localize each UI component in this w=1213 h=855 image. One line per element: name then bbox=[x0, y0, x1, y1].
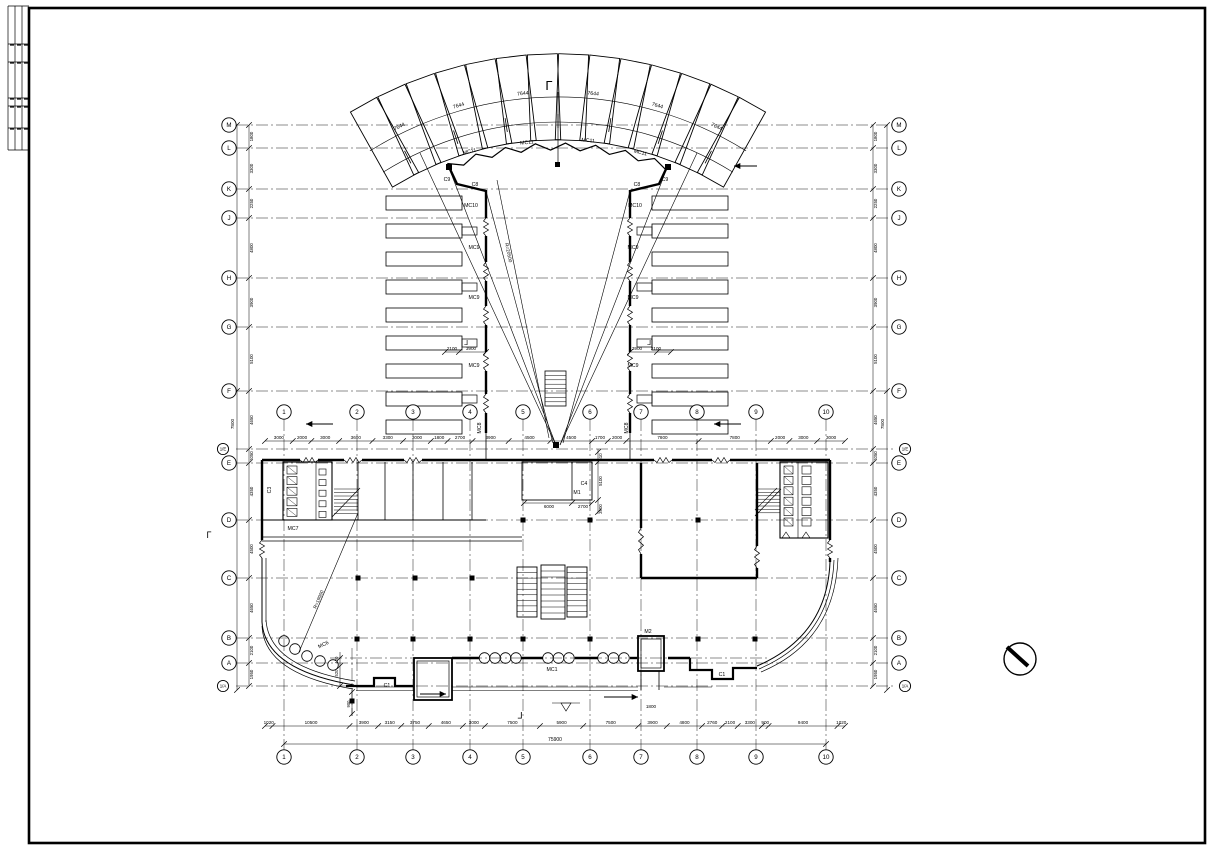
annotation-label: 2100 bbox=[447, 346, 458, 351]
grid-bubble-label: 1 bbox=[282, 754, 286, 761]
annotation-label: MC9 bbox=[469, 363, 480, 369]
sight-line bbox=[299, 513, 358, 652]
seat-row bbox=[386, 392, 462, 406]
dimension-text: 2250 bbox=[873, 198, 878, 208]
annotation-label: 2100 bbox=[651, 346, 662, 351]
dimension-text: 3000 bbox=[798, 435, 809, 440]
grid-bubble-M: M bbox=[892, 118, 906, 132]
seat-row bbox=[652, 336, 728, 350]
vestibule-m2 bbox=[638, 636, 664, 671]
seat-row bbox=[386, 420, 462, 434]
grid-bubble-B: B bbox=[892, 631, 906, 645]
text-annotations: Γ764476447644764476447644MC11MC11MC11MC1… bbox=[207, 78, 885, 743]
annotation-label: 900 bbox=[346, 700, 351, 708]
seat-row-tab bbox=[462, 283, 477, 291]
dimension-text: 5100 bbox=[873, 354, 878, 364]
column-dot bbox=[413, 576, 418, 581]
door-scallop bbox=[302, 651, 313, 662]
seat-row bbox=[652, 308, 728, 322]
stair-flight bbox=[517, 567, 537, 617]
seat-row bbox=[386, 196, 462, 210]
grid-bubble-label: 5 bbox=[521, 754, 525, 761]
line bbox=[287, 508, 297, 516]
grid-bubble-label: M bbox=[226, 122, 231, 129]
dimension-text: 2760 bbox=[707, 720, 718, 725]
rect bbox=[553, 442, 559, 448]
seat-row bbox=[652, 224, 728, 238]
grid-bubble-8: 8 bbox=[690, 405, 704, 419]
window-zigzag bbox=[628, 394, 633, 413]
grid-bubble-10: 10 bbox=[819, 405, 833, 419]
annotation-label: MC11 bbox=[581, 137, 595, 144]
corner-wall bbox=[449, 167, 486, 191]
grid-bubble-label: 1/A bbox=[220, 684, 227, 689]
grid-bubble-C: C bbox=[222, 571, 236, 585]
window-zigzag bbox=[484, 218, 489, 236]
rect bbox=[641, 639, 661, 668]
dimension-annotations: 3000200030003600330030001800270039004500… bbox=[234, 122, 890, 747]
grid-bubble-label: C bbox=[227, 575, 232, 582]
grid-bubble-D: D bbox=[222, 513, 236, 527]
annotation-label: Γ bbox=[647, 338, 651, 345]
sight-line bbox=[420, 153, 556, 445]
grid-bubble-label: J bbox=[227, 215, 230, 222]
arrow-head bbox=[306, 421, 312, 427]
dimension-text: 2700 bbox=[455, 435, 466, 440]
annotation-label: Γ bbox=[464, 338, 468, 345]
dimension-text: 1020 bbox=[264, 720, 275, 725]
grid-bubble-label: E bbox=[227, 460, 231, 467]
line bbox=[784, 497, 793, 505]
column-dot bbox=[521, 637, 526, 642]
path bbox=[262, 626, 353, 689]
dimension-text: 1050 bbox=[249, 451, 254, 461]
arrow-head bbox=[714, 421, 720, 427]
dimension-text: 3000 bbox=[274, 435, 285, 440]
grid-bubble-label: H bbox=[897, 275, 901, 282]
window-zigzag bbox=[628, 218, 633, 236]
floor-plan-drawing: 3000200030003600330030001800270039004500… bbox=[0, 0, 1213, 855]
grid-bubble-E: E bbox=[222, 456, 236, 470]
annotation-label: 2700 bbox=[578, 504, 589, 509]
dimension-text: 7500 bbox=[606, 720, 617, 725]
dimension-text: 4650 bbox=[441, 720, 452, 725]
grid-bubble-label: 4 bbox=[468, 409, 472, 416]
grid-bubble-9: 9 bbox=[749, 750, 763, 764]
grid-bubble-label: 1 bbox=[282, 409, 286, 416]
dimension-text: 3300 bbox=[745, 720, 756, 725]
annotation-label: MC1 bbox=[547, 667, 558, 673]
grid-bubble-F: F bbox=[222, 384, 236, 398]
grid-bubble-label: F bbox=[897, 388, 901, 395]
rect bbox=[555, 162, 560, 167]
dimension-text: 3300 bbox=[249, 163, 254, 173]
seat-row bbox=[386, 224, 462, 238]
annotation-label: MC8 bbox=[624, 422, 630, 433]
window-zigzag bbox=[260, 540, 265, 558]
grid-bubble-label: H bbox=[227, 275, 231, 282]
north-arrow-icon bbox=[1004, 643, 1036, 675]
seat-row bbox=[386, 280, 462, 294]
dimension-text: 4500 bbox=[873, 544, 878, 554]
grid-bubble-2: 2 bbox=[350, 405, 364, 419]
column-dot bbox=[588, 637, 593, 642]
window-zigzag bbox=[755, 546, 760, 568]
grid-bubble-label: 3 bbox=[411, 409, 415, 416]
dimension-text: 7800 bbox=[730, 435, 741, 440]
annotation-label: M2 bbox=[644, 629, 651, 635]
grid-bubble-C: C bbox=[892, 571, 906, 585]
toilet-stall bbox=[802, 487, 811, 495]
grid-bubble-J: J bbox=[222, 211, 236, 225]
grid-bubble-10: 10 bbox=[819, 750, 833, 764]
grid-bubble-4: 4 bbox=[463, 405, 477, 419]
grid-bubble-label: F bbox=[227, 388, 231, 395]
grid-bubble-label: 9 bbox=[754, 754, 758, 761]
annotation-label: C4 bbox=[581, 481, 588, 487]
column-dot bbox=[753, 637, 758, 642]
dimension-text: 3000 bbox=[320, 435, 331, 440]
column-dot bbox=[470, 576, 475, 581]
seat-row-tab bbox=[462, 395, 477, 403]
grid-bubble-G: G bbox=[222, 320, 236, 334]
seat-row bbox=[386, 308, 462, 322]
drawing-sheet: 3000200030003600330030001800270039004500… bbox=[0, 0, 1213, 855]
window-zigzag bbox=[654, 458, 672, 463]
grid-bubble-label: 4 bbox=[468, 754, 472, 761]
annotation-label: 7644 bbox=[452, 102, 465, 111]
path bbox=[759, 560, 834, 669]
seat-row bbox=[652, 392, 728, 406]
level-mark bbox=[561, 703, 571, 711]
annotation-label: 7644 bbox=[517, 90, 529, 97]
arrow-head bbox=[734, 163, 740, 169]
dimension-text: 4650 bbox=[249, 415, 254, 425]
dimension-text: 1020 bbox=[836, 720, 847, 725]
annotation-label: Γ bbox=[517, 710, 522, 720]
grid-bubble-1: 1 bbox=[277, 405, 291, 419]
grid-bubble-9: 9 bbox=[749, 405, 763, 419]
grid-bubble-6: 6 bbox=[583, 750, 597, 764]
toilet-stall bbox=[802, 476, 811, 484]
dimension-text: 3000 bbox=[826, 435, 837, 440]
path bbox=[266, 620, 355, 681]
column-dot bbox=[355, 637, 360, 642]
line bbox=[287, 498, 297, 506]
path bbox=[761, 558, 838, 672]
annotation-label: MC6 bbox=[317, 640, 330, 650]
line bbox=[287, 466, 297, 474]
annotation-label: C9 bbox=[444, 177, 451, 183]
grid-bubble-label: 1/E bbox=[220, 447, 227, 452]
grid-bubble-label: L bbox=[897, 145, 901, 152]
grid-bubble-1: 1 bbox=[277, 750, 291, 764]
annotation-label: MC9 bbox=[628, 295, 639, 301]
grid-bubble-label: 6 bbox=[588, 754, 592, 761]
annotation-label: 120 bbox=[334, 656, 339, 664]
grid-bubble-A: A bbox=[222, 656, 236, 670]
grid-bubble-K: K bbox=[222, 182, 236, 196]
door-scallop bbox=[290, 644, 301, 655]
dimension-text: 2000 bbox=[775, 435, 786, 440]
annotation-label: MC9 bbox=[469, 295, 480, 301]
dimension-text: 3000 bbox=[412, 435, 423, 440]
dimension-text: 900 bbox=[761, 720, 769, 725]
annotation-label: MC9 bbox=[628, 363, 639, 369]
arrow-head bbox=[632, 694, 638, 700]
annotation-label: 510 bbox=[598, 453, 603, 461]
grid-bubble-3: 3 bbox=[406, 750, 420, 764]
annotation-label: MC10 bbox=[628, 203, 642, 209]
annotation-label: 7644 bbox=[393, 122, 406, 133]
annotation-label: C8 bbox=[472, 182, 479, 188]
grid-bubble-label: G bbox=[227, 324, 232, 331]
grid-bubble-6: 6 bbox=[583, 405, 597, 419]
annotation-label: Γ bbox=[207, 530, 212, 540]
grid-bubble-8: 8 bbox=[690, 750, 704, 764]
annotation-label: 1800 bbox=[646, 704, 657, 709]
annotation-label: MC9 bbox=[628, 245, 639, 251]
grid-bubble-7: 7 bbox=[634, 750, 648, 764]
annotation-label: 7644 bbox=[651, 102, 664, 111]
annotation-label: 7800 bbox=[880, 418, 885, 429]
annotation-label: M1 bbox=[573, 490, 580, 496]
grid-bubble-label: 9 bbox=[754, 409, 758, 416]
grid-bubble-5: 5 bbox=[516, 405, 530, 419]
grid-bubble-4: 4 bbox=[463, 750, 477, 764]
grid-bubble-label: 10 bbox=[823, 754, 830, 761]
column-dot bbox=[411, 637, 416, 642]
dimension-text: 1700 bbox=[595, 435, 606, 440]
window-zigzag bbox=[484, 394, 489, 413]
annotation-label: MC7 bbox=[288, 526, 299, 532]
toilet-stall bbox=[802, 518, 811, 526]
title-block bbox=[8, 6, 29, 150]
annotation-label: MC11 bbox=[633, 148, 648, 157]
toilet-stall bbox=[802, 466, 811, 474]
dimension-text: 4350 bbox=[873, 486, 878, 496]
grid-bubble-label: 7 bbox=[639, 754, 643, 761]
grid-bubble-label: G bbox=[897, 324, 902, 331]
seat-row-tab bbox=[637, 227, 652, 235]
seat-row bbox=[652, 280, 728, 294]
dimension-text: 3900 bbox=[647, 720, 658, 725]
dimension-text: 2000 bbox=[612, 435, 623, 440]
dimension-text: 3900 bbox=[249, 297, 254, 307]
annotation-label: 3900 bbox=[466, 346, 477, 351]
dimension-text: 2100 bbox=[249, 645, 254, 655]
dimension-text: 3750 bbox=[410, 720, 421, 725]
dimension-text: 3900 bbox=[359, 720, 370, 725]
line bbox=[784, 508, 793, 516]
grid-bubble-label: 8 bbox=[695, 754, 699, 761]
grid-bubble-label: 2 bbox=[355, 409, 359, 416]
annotation-label: MC11 bbox=[520, 139, 534, 146]
grid-bubble-label: 7 bbox=[639, 409, 643, 416]
grid-bubble-label: E bbox=[897, 460, 901, 467]
dimension-text: 4500 bbox=[249, 544, 254, 554]
dimension-text: 4650 bbox=[873, 603, 878, 613]
annotation-label: 6000 bbox=[544, 504, 555, 509]
grid-bubble-1/E: 1/E bbox=[899, 443, 910, 454]
window-zigzag bbox=[828, 540, 833, 558]
annotation-label: 7800 bbox=[230, 418, 235, 429]
line bbox=[784, 476, 793, 484]
toilet-stall bbox=[802, 497, 811, 505]
fixture bbox=[319, 469, 326, 475]
window-zigzag bbox=[712, 458, 730, 463]
line bbox=[287, 477, 297, 485]
column-dot bbox=[521, 518, 526, 523]
annotation-label: 75900 bbox=[548, 737, 562, 743]
seat-row-tab bbox=[637, 395, 652, 403]
annotation-label: R=19900 bbox=[312, 589, 325, 610]
dimension-text: 5100 bbox=[249, 354, 254, 364]
annotation-label: 7644 bbox=[587, 90, 599, 97]
rect bbox=[417, 661, 449, 697]
annotation-label: 3900 bbox=[632, 346, 643, 351]
dimension-text: 3600 bbox=[351, 435, 362, 440]
annotation-label: MC8 bbox=[477, 422, 483, 433]
dimension-text: 4350 bbox=[249, 486, 254, 496]
grid-bubble-F: F bbox=[892, 384, 906, 398]
grid-bubble-1/E: 1/E bbox=[217, 443, 228, 454]
bottom-wall bbox=[346, 678, 413, 686]
grid-bubble-7: 7 bbox=[634, 405, 648, 419]
grid-bubble-G: G bbox=[892, 320, 906, 334]
seat-row bbox=[652, 364, 728, 378]
grid-bubble-label: D bbox=[897, 517, 902, 524]
seat-row bbox=[652, 252, 728, 266]
grid-bubble-H: H bbox=[222, 271, 236, 285]
dimension-text: 1050 bbox=[873, 451, 878, 461]
dimension-text: 1800 bbox=[873, 131, 878, 141]
dimension-text: 3000 bbox=[469, 720, 480, 725]
toilet-stall bbox=[802, 508, 811, 516]
dimension-text: 10500 bbox=[305, 720, 318, 725]
dimension-text: 4650 bbox=[873, 415, 878, 425]
grid-bubble-label: 2 bbox=[355, 754, 359, 761]
stair-flight bbox=[567, 567, 587, 617]
grid-bubble-A: A bbox=[892, 656, 906, 670]
sheet-frame bbox=[29, 8, 1205, 843]
border-frame bbox=[29, 8, 1205, 843]
dimension-text: 4500 bbox=[524, 435, 535, 440]
seat-row bbox=[652, 420, 728, 434]
column-dot bbox=[588, 518, 593, 523]
annotation-label: 3900 bbox=[598, 504, 603, 514]
grid-bubble-label: 8 bbox=[695, 409, 699, 416]
grid-bubble-label: 1/E bbox=[902, 447, 909, 452]
grid-bubble-label: B bbox=[227, 635, 231, 642]
dimension-text: 1950 bbox=[249, 669, 254, 679]
annotation-label: Γ bbox=[545, 78, 552, 93]
grid-bubble-K: K bbox=[892, 182, 906, 196]
sight-line bbox=[560, 168, 667, 445]
sight-line bbox=[449, 168, 556, 445]
grid-bubble-label: 3 bbox=[411, 754, 415, 761]
dimension-text: 4500 bbox=[566, 435, 577, 440]
dimension-text: 2100 bbox=[725, 720, 736, 725]
fixture bbox=[319, 511, 326, 517]
arrow-head bbox=[440, 691, 446, 697]
line bbox=[287, 487, 297, 495]
grid-bubble-label: L bbox=[227, 145, 231, 152]
grid-bubble-M: M bbox=[222, 118, 236, 132]
grid-bubble-L: L bbox=[892, 141, 906, 155]
grid-bubble-label: 1/A bbox=[902, 684, 909, 689]
annotation-label: MC9 bbox=[469, 245, 480, 251]
grid-bubble-E: E bbox=[892, 456, 906, 470]
dimension-text: 4800 bbox=[679, 720, 690, 725]
grid-bubble-label: C bbox=[897, 575, 902, 582]
window-zigzag bbox=[484, 352, 489, 371]
grid-bubble-D: D bbox=[892, 513, 906, 527]
line bbox=[784, 487, 793, 495]
annotation-label: 5100 bbox=[598, 476, 603, 486]
grid-bubble-label: 10 bbox=[823, 409, 830, 416]
seat-row-tab bbox=[462, 227, 477, 235]
window-zigzag bbox=[628, 306, 633, 325]
grid-bubble-label: B bbox=[897, 635, 901, 642]
dimension-text: 5900 bbox=[556, 720, 567, 725]
dimension-text: 2250 bbox=[249, 198, 254, 208]
seat-row bbox=[386, 252, 462, 266]
door-swing bbox=[802, 532, 810, 538]
door-swing bbox=[782, 532, 790, 538]
line bbox=[784, 466, 793, 474]
dimension-text: 3900 bbox=[485, 435, 496, 440]
fixture bbox=[319, 501, 326, 507]
grid-bubble-2: 2 bbox=[350, 750, 364, 764]
grid-bubble-J: J bbox=[892, 211, 906, 225]
dimension-text: 1800 bbox=[434, 435, 445, 440]
column-dot bbox=[356, 576, 361, 581]
grid-bubble-label: 5 bbox=[521, 409, 525, 416]
annotation-label: C3 bbox=[267, 487, 273, 494]
column-dot bbox=[468, 637, 473, 642]
dimension-text: 3300 bbox=[873, 163, 878, 173]
fixture bbox=[319, 490, 326, 496]
dimension-text: 2000 bbox=[297, 435, 308, 440]
dimension-text: 9400 bbox=[798, 720, 809, 725]
seat-row-tab bbox=[637, 283, 652, 291]
column-dot bbox=[696, 518, 701, 523]
curtain-curve bbox=[757, 562, 830, 666]
grid-bubble-5: 5 bbox=[516, 750, 530, 764]
grid-bubble-3: 3 bbox=[406, 405, 420, 419]
north-slash bbox=[1007, 647, 1028, 666]
annotation-label: MC10 bbox=[464, 203, 478, 209]
seat-row bbox=[652, 196, 728, 210]
annotation-label: 520 bbox=[334, 669, 339, 677]
building-geometry bbox=[262, 54, 828, 716]
dimension-text: 4800 bbox=[873, 243, 878, 253]
dimension-text: 4650 bbox=[249, 603, 254, 613]
column-dot bbox=[696, 637, 701, 642]
seat-row bbox=[386, 364, 462, 378]
grid-bubble-B: B bbox=[222, 631, 236, 645]
grid-bubble-label: J bbox=[897, 215, 900, 222]
line bbox=[784, 518, 793, 526]
annotation-label: C1 bbox=[384, 683, 391, 689]
dimension-text: 1950 bbox=[873, 669, 878, 679]
grid-bubble-1/A: 1/A bbox=[899, 680, 910, 691]
dimension-text: 3900 bbox=[873, 297, 878, 307]
grid-bubble-label: M bbox=[896, 122, 901, 129]
dimension-text: 7800 bbox=[657, 435, 668, 440]
dimension-text: 4800 bbox=[249, 243, 254, 253]
